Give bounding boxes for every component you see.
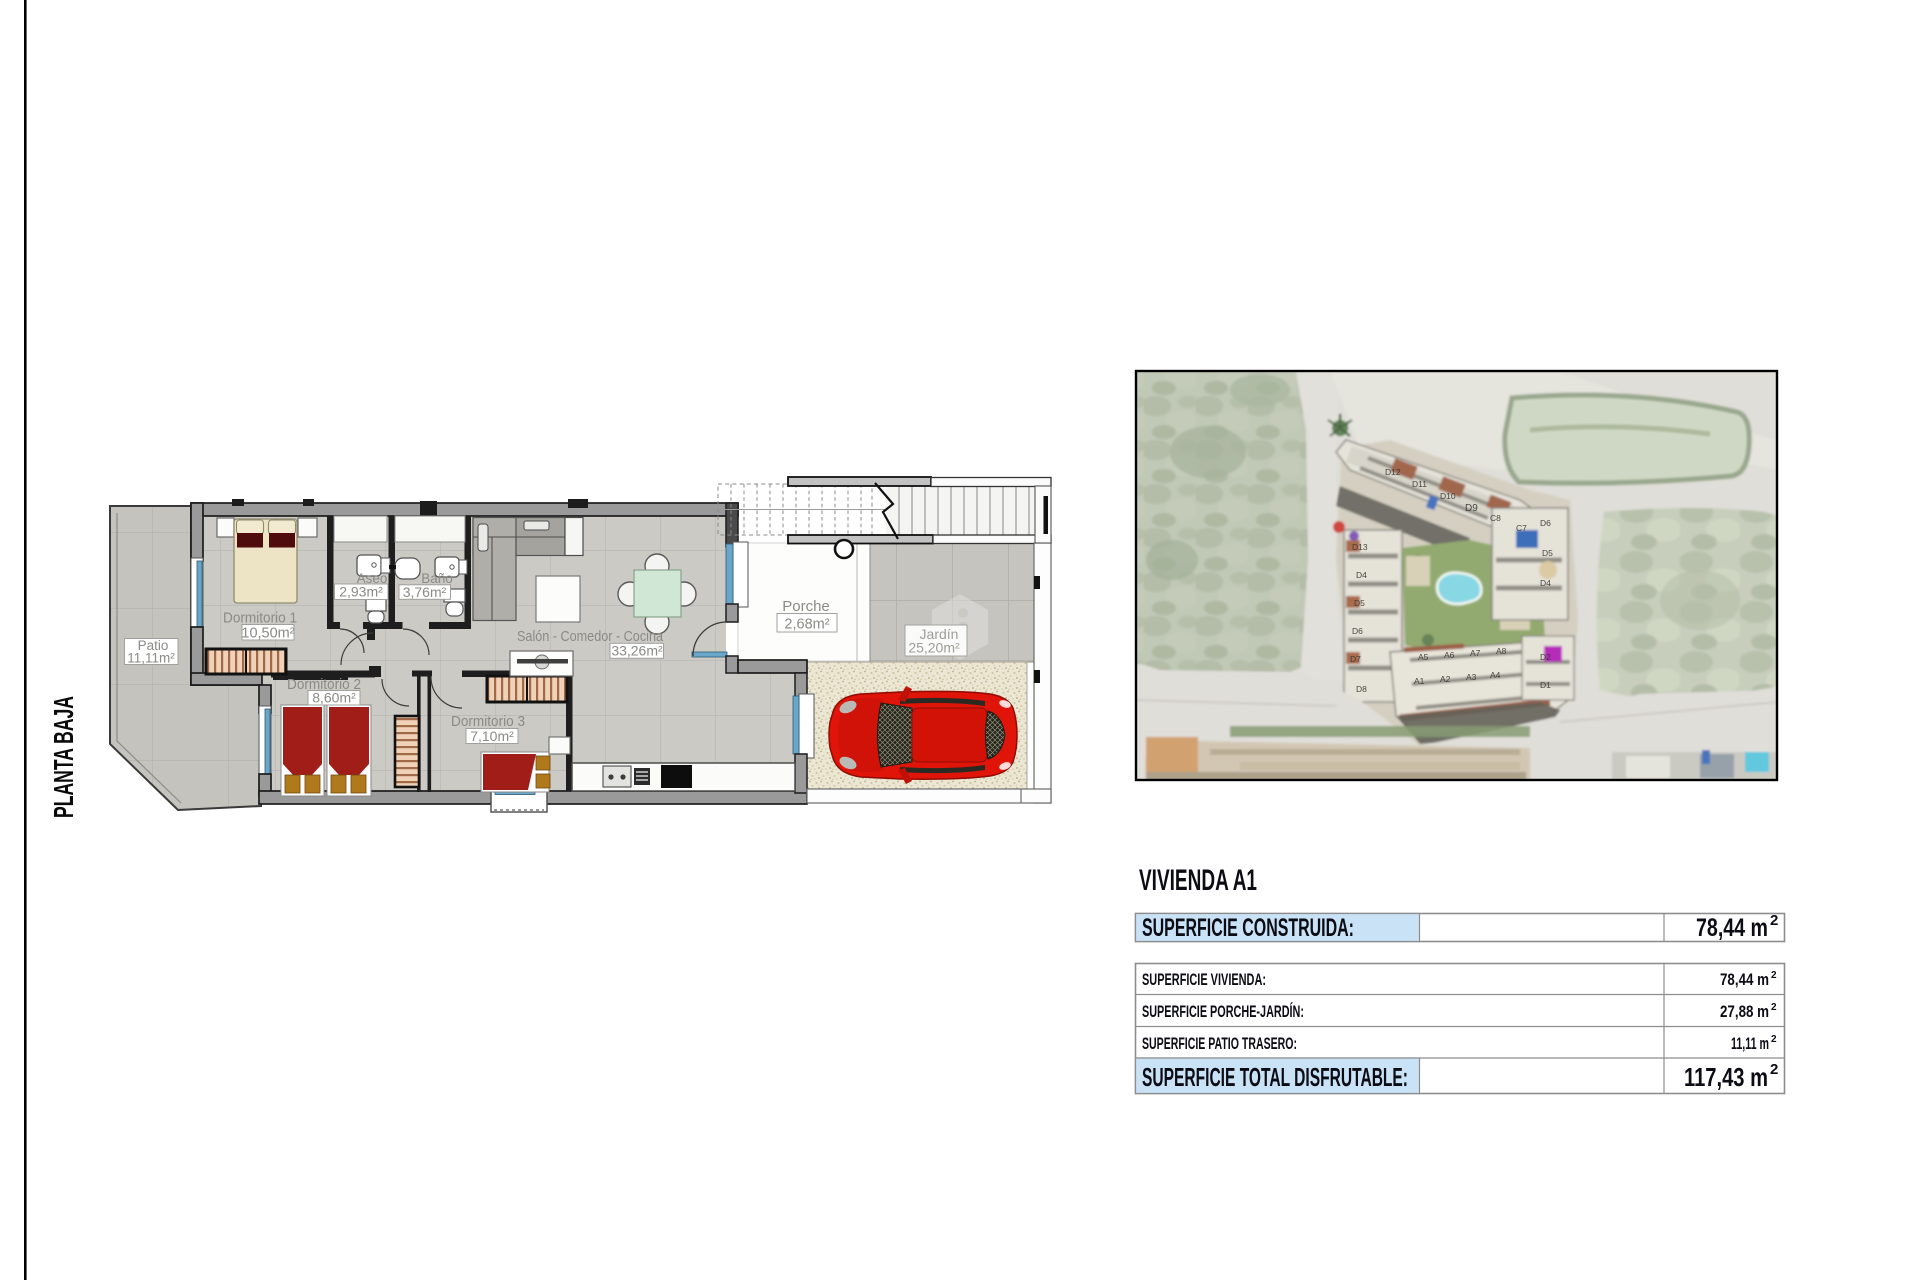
svg-text:SUPERFICIE TOTAL DISFRUTABLE:: SUPERFICIE TOTAL DISFRUTABLE:: [1142, 1062, 1408, 1092]
svg-text:2: 2: [1770, 912, 1778, 929]
svg-text:SUPERFICIE PATIO TRASERO:: SUPERFICIE PATIO TRASERO:: [1142, 1035, 1297, 1053]
svg-text:2,68m²: 2,68m²: [784, 617, 829, 633]
svg-text:11,11 m: 11,11 m: [1731, 1035, 1769, 1053]
svg-text:2,93m²: 2,93m²: [339, 584, 383, 600]
svg-text:117,43 m: 117,43 m: [1684, 1062, 1768, 1092]
svg-text:SUPERFICIE PORCHE-JARDÍN:: SUPERFICIE PORCHE-JARDÍN:: [1142, 1002, 1304, 1021]
svg-text:2: 2: [1771, 1034, 1777, 1045]
svg-text:33,26m²: 33,26m²: [611, 643, 663, 659]
svg-text:7,10m²: 7,10m²: [470, 728, 514, 744]
svg-text:11,11m²: 11,11m²: [127, 651, 175, 666]
svg-text:SUPERFICIE VIVIENDA:: SUPERFICIE VIVIENDA:: [1142, 971, 1266, 989]
svg-text:27,88 m: 27,88 m: [1720, 1003, 1769, 1021]
svg-text:2: 2: [1771, 1002, 1777, 1013]
svg-text:Dormitorio 1: Dormitorio 1: [223, 610, 297, 627]
svg-text:3,76m²: 3,76m²: [403, 584, 447, 600]
svg-text:2: 2: [1770, 1061, 1778, 1078]
svg-text:25,20m²: 25,20m²: [908, 640, 960, 656]
svg-text:2: 2: [1771, 970, 1777, 981]
svg-text:8,60m²: 8,60m²: [312, 690, 356, 706]
svg-text:10,50m²: 10,50m²: [241, 626, 294, 642]
svg-text:78,44 m: 78,44 m: [1720, 971, 1769, 989]
svg-text:VIVIENDA A1: VIVIENDA A1: [1139, 864, 1257, 897]
svg-text:Porche: Porche: [782, 598, 830, 615]
svg-text:SUPERFICIE CONSTRUIDA:: SUPERFICIE CONSTRUIDA:: [1142, 914, 1354, 942]
svg-text:78,44 m: 78,44 m: [1696, 914, 1768, 942]
svg-text:PLANTA BAJA: PLANTA BAJA: [48, 696, 79, 818]
